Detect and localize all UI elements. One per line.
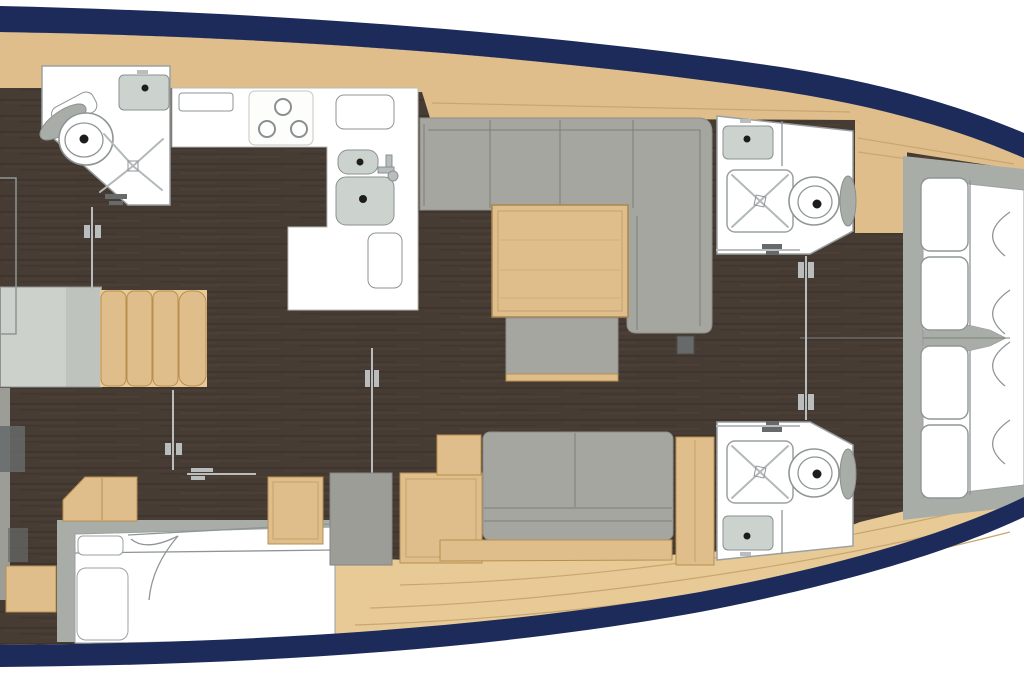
berth-frame-side [57,520,77,642]
pillow [77,568,128,640]
floor-hatch [677,336,694,354]
starboard-settee [483,432,673,540]
settee-plinth [440,540,672,561]
door-handle [84,225,90,238]
toilet-cistern [840,449,856,499]
pillow [921,346,968,419]
aft-head-door-handle [105,194,127,199]
stowage-cabinet-gray [330,473,392,565]
faucet [740,552,751,556]
drain-dot [357,159,364,166]
step-tread [179,291,206,386]
faucet-dot [142,85,149,92]
head-shower [727,170,793,232]
door-handle [766,251,779,255]
pillow [921,257,968,330]
forward-head-port [716,116,856,255]
stowage-cabinet-wood [268,477,323,544]
faucet-dot [744,136,751,143]
stove-burner [275,99,291,115]
pillow [921,178,968,251]
yacht-floor-plan [0,0,1024,680]
head-sink [723,126,773,159]
stove-burner [259,121,275,137]
door-handle [762,244,782,249]
toilet-flush-dot [80,135,89,144]
pillow [78,536,123,555]
aft-gray-box-2 [8,528,28,562]
landing-platform [0,287,66,387]
aft-gray-box [0,426,25,472]
door-handle [808,394,814,410]
bench-plinth [506,374,618,381]
toilet-cistern [840,176,856,226]
door-handle [176,443,182,455]
saloon-table [492,205,628,317]
door-handle [95,225,101,238]
step-tread [127,291,152,386]
floor-plan-stage [0,0,1024,680]
stove-burner [291,121,307,137]
toilet-flush-dot [813,470,822,479]
faucet-dot [744,533,751,540]
door-handle [762,427,782,432]
faucet [740,119,751,123]
pillow [921,425,968,498]
faucet [137,70,148,74]
saloon-bench [506,318,618,374]
door-handle [365,370,370,387]
door-handle [374,370,379,387]
step-tread [101,291,126,386]
sliding-door-handle [191,468,213,472]
drain-dot [359,195,367,203]
stowage-box [437,435,481,475]
forward-head-starboard [716,421,856,560]
step-tread [153,291,178,386]
aft-wood-block [6,566,56,612]
aft-head-sink [119,75,169,110]
door-handle [798,394,804,410]
landing-platform-2 [66,287,102,387]
door-handle [808,262,814,278]
sliding-door-handle [191,476,205,480]
door-handle [165,443,171,455]
toilet-flush-dot [813,200,822,209]
faucet-base [388,171,398,181]
head-shower [727,441,793,503]
door-handle [798,262,804,278]
aft-head-door-handle [109,201,123,205]
door-handle [766,421,779,425]
